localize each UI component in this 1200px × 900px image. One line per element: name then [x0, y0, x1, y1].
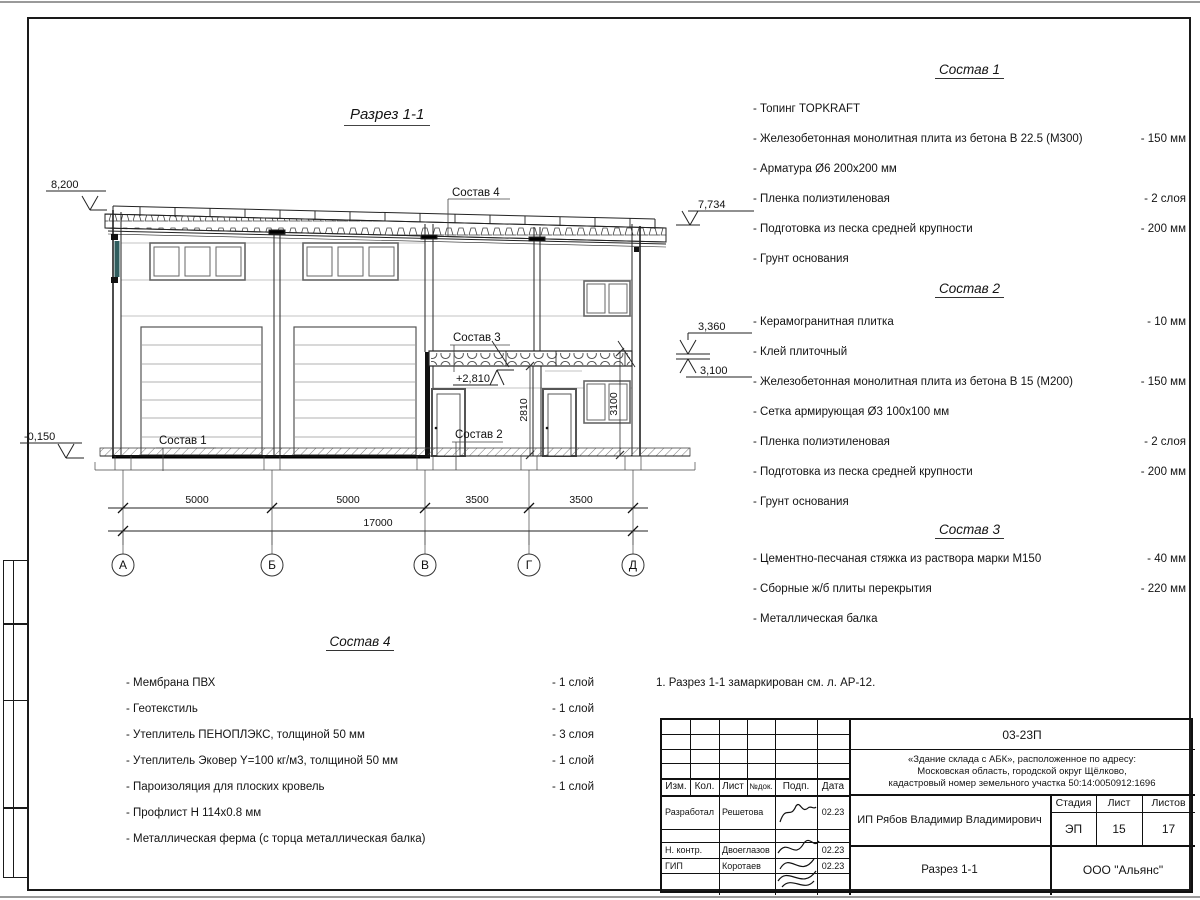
tb-header-kol: Кол. — [690, 778, 719, 795]
list-item: - Керамогранитная плитка- 10 мм — [753, 316, 1186, 346]
list-item: - Утеплитель Эковер Y=100 кг/м3, толщино… — [126, 755, 594, 781]
tb-client: ИП Рябов Владимир Владимирович — [849, 794, 1050, 845]
list-item: - Цементно-песчаная стяжка из раствора м… — [753, 553, 1186, 583]
tb-header-izm: Изм. — [662, 778, 690, 795]
list-item: - Профлист Н 114х0.8 мм — [126, 807, 594, 833]
list-item: - Металлическая ферма (с торца металличе… — [126, 833, 594, 859]
axis-a: А — [119, 558, 127, 572]
dim-door-height: 2810 — [518, 398, 530, 422]
tb-sheet-label: Лист — [1096, 794, 1142, 812]
callout-sostav2: Состав 2 — [455, 429, 503, 441]
callout-sostav4: Состав 4 — [452, 187, 500, 199]
axis-d: Д — [629, 558, 637, 572]
tb-name-gip: Коротаев — [719, 858, 775, 873]
tb-name-ncontrol: Двоеглазов — [719, 842, 775, 858]
list-item: - Железобетонная монолитная плита из бет… — [753, 376, 1186, 406]
list-item: - Арматура Ø6 200х200 мм — [753, 163, 1186, 193]
composition-1-title: Состав 1 — [753, 62, 1186, 77]
signature-gip — [772, 835, 822, 893]
tb-header-doc: №док. — [747, 778, 775, 795]
axis-b: Б — [268, 558, 276, 572]
elev-roof-left: 8,200 — [51, 179, 79, 191]
abk-door-right — [543, 389, 576, 456]
floor-slab — [95, 448, 695, 470]
composition-list-2: Состав 2 - Керамогранитная плитка- 10 мм… — [753, 281, 1186, 526]
composition-2-title: Состав 2 — [753, 281, 1186, 296]
axis-g: Г — [526, 558, 533, 572]
elev-mezz-inner: +2,810 — [456, 373, 490, 385]
tb-sheet-value: 15 — [1096, 812, 1142, 845]
elev-mezz-bottom: 3,100 — [700, 365, 728, 377]
composition-list-1: Состав 1 - Топинг TOPKRAFT - Железобетон… — [753, 62, 1186, 283]
dim-span-3: 3500 — [465, 494, 489, 506]
tb-name-developer: Решетова — [719, 795, 775, 829]
tb-role-developer: Разработал — [662, 795, 719, 829]
list-item: - Пленка полиэтиленовая- 2 слоя — [753, 436, 1186, 466]
drawing-sheet: { "drawing": { "title": "Разрез 1-1", "c… — [0, 0, 1200, 900]
tb-project-desc: «Здание склада с АБК», расположенное по … — [849, 749, 1195, 794]
title-block: Изм. Кол. Лист №док. Подп. Дата Разработ… — [660, 718, 1193, 893]
composition-3-title: Состав 3 — [753, 522, 1186, 537]
tb-stage-value: ЭП — [1051, 812, 1096, 845]
roof-assembly — [105, 206, 666, 247]
list-item: - Металлическая балка — [753, 613, 1186, 643]
elev-mezz-top: 3,360 — [698, 321, 726, 333]
dim-span-1: 5000 — [185, 494, 209, 506]
sheet-note: 1. Разрез 1-1 замаркирован см. л. АР-12. — [656, 677, 875, 689]
tb-header-podp: Подп. — [775, 778, 817, 795]
tb-role-gip: ГИП — [662, 858, 719, 873]
axis-bubbles — [112, 554, 644, 576]
list-item: - Подготовка из песка средней крупности-… — [753, 223, 1186, 253]
signature-developer — [776, 798, 818, 828]
composition-4-title: Состав 4 — [126, 634, 594, 649]
list-item: - Грунт основания — [753, 253, 1186, 283]
axis-v: В — [421, 558, 429, 572]
tb-stage-label: Стадия — [1051, 794, 1096, 812]
composition-list-4: Состав 4 - Мембрана ПВХ- 1 слой - Геотек… — [126, 634, 594, 859]
tb-header-data: Дата — [817, 778, 849, 795]
list-item: - Железобетонная монолитная плита из бет… — [753, 133, 1186, 163]
list-item: - Геотекстиль- 1 слой — [126, 703, 594, 729]
composition-list-3: Состав 3 - Цементно-песчаная стяжка из р… — [753, 522, 1186, 643]
tb-sheets-label: Листов — [1142, 794, 1195, 812]
dim-span-4: 3500 — [569, 494, 593, 506]
list-item: - Мембрана ПВХ- 1 слой — [126, 677, 594, 703]
tb-header-list: Лист — [719, 778, 747, 795]
list-item: - Сетка армирующая Ø3 100х100 мм — [753, 406, 1186, 436]
tb-doc-number: 03-23П — [849, 720, 1195, 749]
callout-sostav1: Состав 1 — [159, 435, 207, 447]
dim-total: 17000 — [363, 517, 392, 529]
elev-ground: -0,150 — [24, 431, 55, 443]
list-item: - Топинг TOPKRAFT — [753, 103, 1186, 133]
list-item: - Утеплитель ПЕНОПЛЭКС, толщиной 50 мм- … — [126, 729, 594, 755]
tb-sheets-value: 17 — [1142, 812, 1195, 845]
drawing-title: Разрез 1-1 — [344, 106, 430, 123]
abk-door-left — [432, 389, 465, 456]
tb-role-ncontrol: Н. контр. — [662, 842, 719, 858]
dim-span-2: 5000 — [336, 494, 360, 506]
list-item: - Пароизоляция для плоских кровель- 1 сл… — [126, 781, 594, 807]
elev-roof-right: 7,734 — [698, 199, 726, 211]
tb-date-developer: 02.23 — [817, 795, 849, 829]
dimension-lines — [108, 470, 648, 554]
list-item: - Сборные ж/б плиты перекрытия- 220 мм — [753, 583, 1186, 613]
callout-sostav3: Состав 3 — [453, 332, 501, 344]
tb-company: ООО "Альянс" — [1051, 845, 1195, 895]
tb-sheet-title: Разрез 1-1 — [849, 845, 1050, 895]
list-item: - Пленка полиэтиленовая- 2 слоя — [753, 193, 1186, 223]
dim-window-height: 3100 — [608, 392, 620, 416]
list-item: - Клей плиточный — [753, 346, 1186, 376]
list-item: - Подготовка из песка средней крупности-… — [753, 466, 1186, 496]
sectional-gate-right — [294, 327, 416, 455]
